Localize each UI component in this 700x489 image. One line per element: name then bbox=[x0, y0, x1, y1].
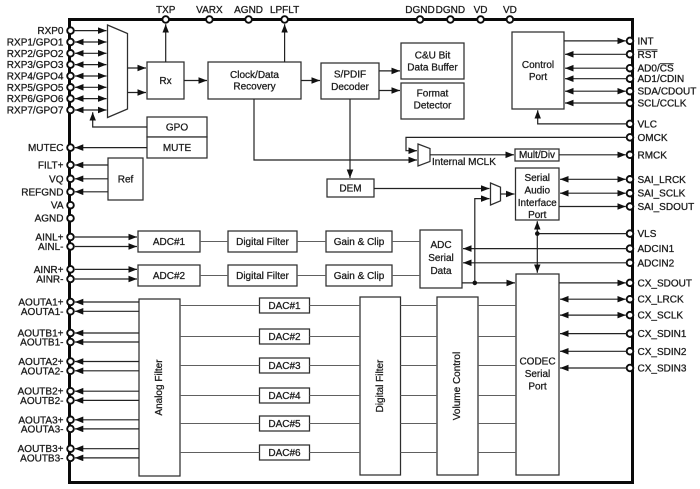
svg-text:RXP3/GPO3: RXP3/GPO3 bbox=[7, 60, 64, 71]
svg-text:RXP2/GPO2: RXP2/GPO2 bbox=[7, 49, 64, 60]
svg-text:ADC: ADC bbox=[430, 240, 451, 251]
svg-text:C&U Bit: C&U Bit bbox=[415, 51, 451, 62]
svg-text:RXP4/GPO4: RXP4/GPO4 bbox=[7, 72, 64, 83]
svg-text:Rx: Rx bbox=[159, 76, 171, 87]
svg-text:AOUTA1-: AOUTA1- bbox=[21, 307, 64, 318]
svg-text:Internal MCLK: Internal MCLK bbox=[432, 157, 496, 168]
svg-text:Ref: Ref bbox=[118, 175, 134, 186]
svg-text:Format: Format bbox=[417, 89, 449, 100]
svg-text:RMCK: RMCK bbox=[638, 150, 668, 161]
svg-text:Digital Filter: Digital Filter bbox=[236, 237, 289, 248]
svg-text:SAI_LRCK: SAI_LRCK bbox=[638, 175, 687, 186]
svg-text:DAC#3: DAC#3 bbox=[268, 361, 301, 372]
svg-text:AOUTA2-: AOUTA2- bbox=[21, 366, 64, 377]
svg-text:RXP0: RXP0 bbox=[37, 26, 64, 37]
svg-text:GPO: GPO bbox=[166, 123, 188, 134]
svg-text:DAC#6: DAC#6 bbox=[268, 448, 301, 459]
svg-text:RXP1/GPO1: RXP1/GPO1 bbox=[7, 38, 64, 49]
svg-text:SAI_SDOUT: SAI_SDOUT bbox=[638, 202, 695, 213]
svg-text:RST: RST bbox=[638, 50, 658, 61]
svg-text:Port: Port bbox=[528, 210, 547, 221]
svg-text:DAC#2: DAC#2 bbox=[268, 332, 301, 343]
svg-text:RXP5/GPO5: RXP5/GPO5 bbox=[7, 83, 64, 94]
svg-text:ADC#1: ADC#1 bbox=[153, 237, 186, 248]
svg-text:CX_SDIN2: CX_SDIN2 bbox=[638, 347, 687, 358]
svg-text:Serial: Serial bbox=[525, 369, 551, 380]
svg-text:SDA/CDOUT: SDA/CDOUT bbox=[638, 87, 697, 98]
svg-text:AD0/CS: AD0/CS bbox=[638, 64, 674, 75]
svg-text:Gain & Clip: Gain & Clip bbox=[334, 237, 385, 248]
svg-text:Port: Port bbox=[529, 72, 548, 83]
svg-text:MUTEC: MUTEC bbox=[28, 143, 64, 154]
svg-text:ADCIN1: ADCIN1 bbox=[638, 244, 675, 255]
svg-text:Digital Filter: Digital Filter bbox=[236, 271, 289, 282]
svg-text:INT: INT bbox=[638, 36, 654, 47]
svg-text:AGND: AGND bbox=[234, 5, 263, 16]
svg-text:AOUTA3-: AOUTA3- bbox=[21, 424, 64, 435]
svg-text:AOUTB2-: AOUTB2- bbox=[20, 396, 63, 407]
svg-text:S/PDIF: S/PDIF bbox=[334, 70, 366, 81]
svg-text:OMCK: OMCK bbox=[638, 133, 668, 144]
svg-text:CX_LRCK: CX_LRCK bbox=[638, 295, 684, 306]
svg-text:Serial: Serial bbox=[524, 173, 550, 184]
svg-text:AINL-: AINL- bbox=[38, 242, 64, 253]
svg-text:DEM: DEM bbox=[339, 184, 361, 195]
svg-text:FILT+: FILT+ bbox=[38, 161, 64, 172]
svg-text:AOUTB1-: AOUTB1- bbox=[20, 338, 63, 349]
svg-text:REFGND: REFGND bbox=[21, 187, 63, 198]
svg-text:VARX: VARX bbox=[196, 5, 223, 16]
svg-text:Data Buffer: Data Buffer bbox=[407, 63, 458, 74]
svg-text:DAC#1: DAC#1 bbox=[268, 301, 301, 312]
svg-text:Recovery: Recovery bbox=[233, 82, 275, 93]
svg-text:VLS: VLS bbox=[638, 229, 657, 240]
svg-text:DGND: DGND bbox=[405, 5, 434, 16]
svg-text:Port: Port bbox=[528, 382, 547, 393]
svg-text:Volume Control: Volume Control bbox=[452, 352, 463, 420]
svg-text:AOUTB3-: AOUTB3- bbox=[20, 453, 63, 464]
svg-text:SAI_SCLK: SAI_SCLK bbox=[638, 189, 686, 200]
svg-text:RXP6/GPO6: RXP6/GPO6 bbox=[7, 94, 64, 105]
svg-text:CX_SDIN3: CX_SDIN3 bbox=[638, 364, 687, 375]
svg-text:TXP: TXP bbox=[156, 5, 176, 16]
svg-text:ADC#2: ADC#2 bbox=[153, 271, 186, 282]
svg-text:Interface: Interface bbox=[518, 198, 557, 209]
svg-text:ADCIN2: ADCIN2 bbox=[638, 258, 675, 269]
svg-text:Decoder: Decoder bbox=[331, 82, 369, 93]
svg-text:DAC#4: DAC#4 bbox=[268, 391, 301, 402]
svg-text:MUTE: MUTE bbox=[163, 143, 192, 154]
svg-text:Analog Filter: Analog Filter bbox=[154, 359, 165, 416]
svg-text:VA: VA bbox=[51, 201, 64, 212]
svg-text:SCL/CCLK: SCL/CCLK bbox=[638, 99, 687, 110]
svg-text:Clock/Data: Clock/Data bbox=[230, 70, 279, 81]
svg-text:Data: Data bbox=[430, 266, 452, 277]
svg-text:Digital Filter: Digital Filter bbox=[375, 359, 386, 412]
svg-text:CODEC: CODEC bbox=[519, 357, 555, 368]
svg-text:Control: Control bbox=[522, 60, 554, 71]
svg-text:AD1/CDIN: AD1/CDIN bbox=[638, 74, 685, 85]
svg-text:Detector: Detector bbox=[414, 101, 452, 112]
svg-text:LPFLT: LPFLT bbox=[270, 5, 299, 16]
svg-text:CX_SCLK: CX_SCLK bbox=[638, 311, 684, 322]
svg-text:Gain & Clip: Gain & Clip bbox=[334, 271, 385, 282]
svg-text:Audio: Audio bbox=[524, 186, 550, 197]
svg-text:DGND: DGND bbox=[436, 5, 465, 16]
svg-text:Mult/Div: Mult/Div bbox=[519, 150, 555, 161]
svg-text:DAC#5: DAC#5 bbox=[268, 419, 301, 430]
svg-text:VD: VD bbox=[503, 5, 517, 16]
svg-text:Serial: Serial bbox=[428, 253, 454, 264]
svg-text:VQ: VQ bbox=[49, 174, 64, 185]
svg-text:VD: VD bbox=[474, 5, 488, 16]
svg-text:CX_SDOUT: CX_SDOUT bbox=[638, 278, 692, 289]
svg-text:AINR-: AINR- bbox=[36, 275, 63, 286]
svg-text:CX_SDIN1: CX_SDIN1 bbox=[638, 329, 687, 340]
svg-text:VLC: VLC bbox=[638, 119, 657, 130]
svg-text:RXP7/GPO7: RXP7/GPO7 bbox=[7, 106, 64, 117]
svg-text:AGND: AGND bbox=[35, 214, 64, 225]
